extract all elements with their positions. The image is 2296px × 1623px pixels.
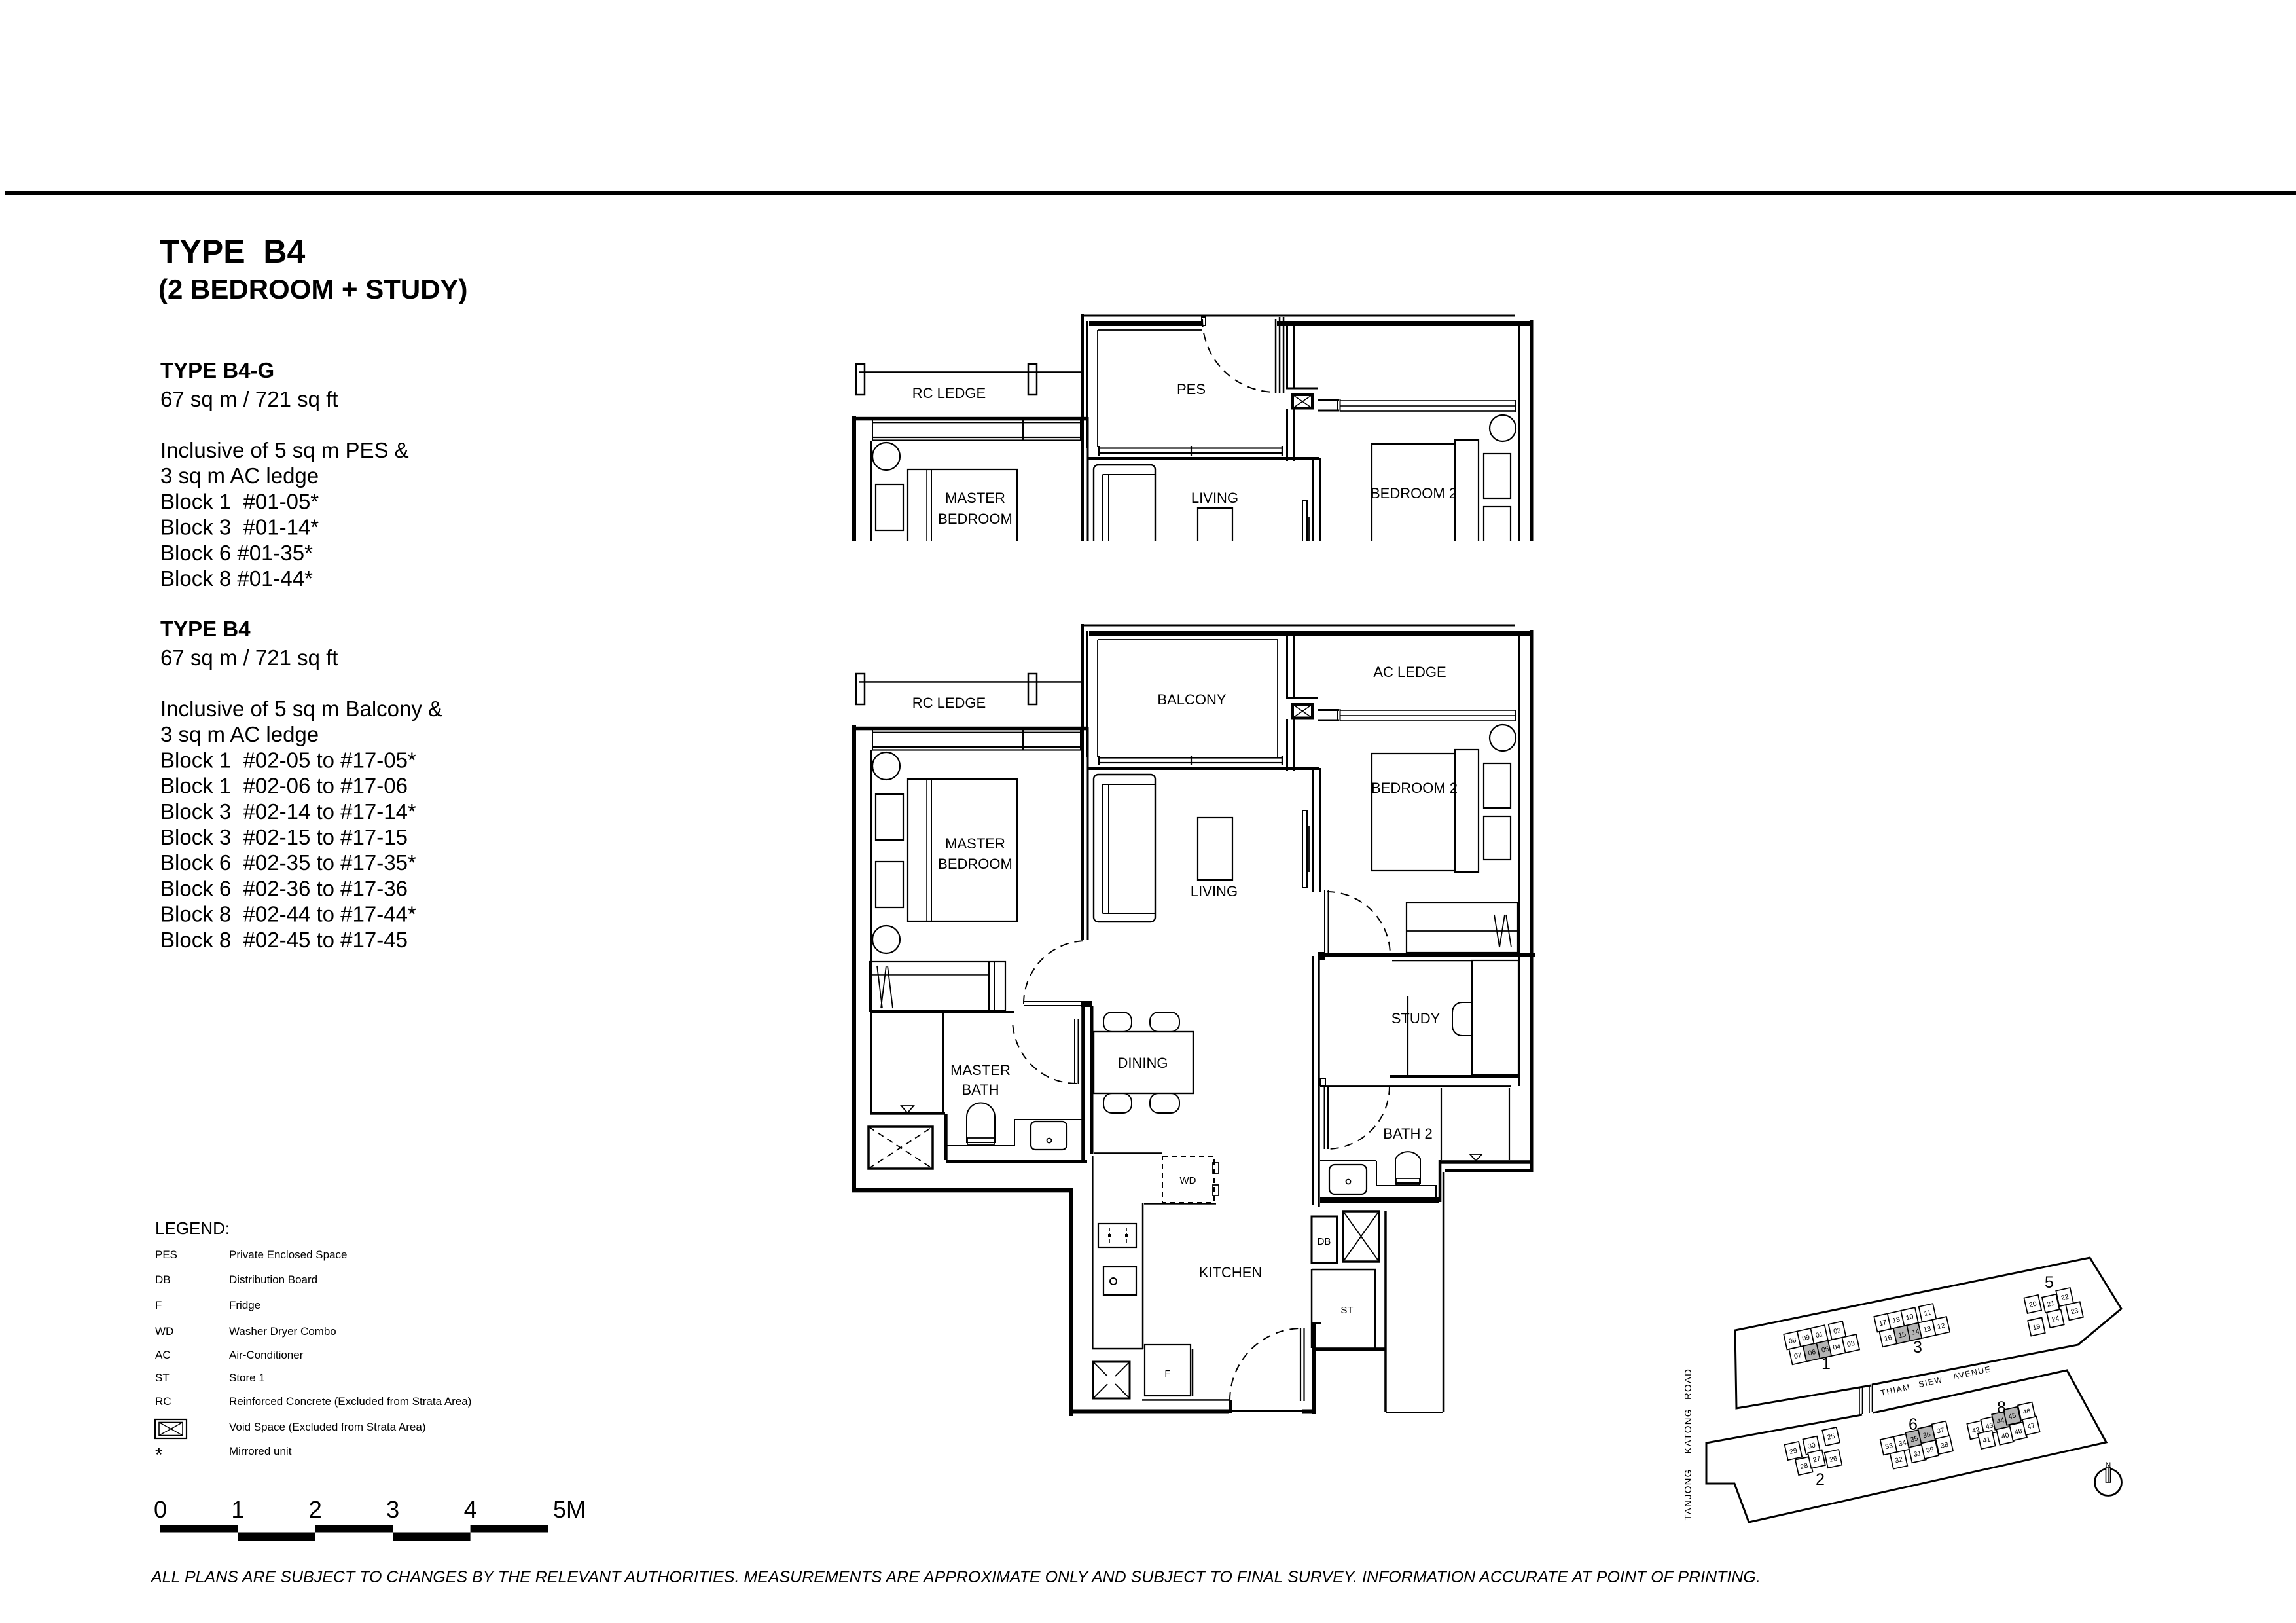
svg-text:3 sq m AC ledge: 3 sq m AC ledge bbox=[160, 464, 319, 488]
svg-text:MASTER: MASTER bbox=[945, 835, 1005, 852]
svg-text:WD: WD bbox=[1180, 1175, 1196, 1186]
svg-text:N: N bbox=[2106, 1461, 2111, 1470]
svg-text:RC LEDGE: RC LEDGE bbox=[912, 385, 986, 401]
svg-text:TANJONG: TANJONG bbox=[1683, 1469, 1694, 1521]
svg-text:KATONG: KATONG bbox=[1683, 1408, 1694, 1453]
svg-text:Void Space (Excluded from Stra: Void Space (Excluded from Strata Area) bbox=[229, 1421, 426, 1433]
svg-text:67 sq m / 721 sq ft: 67 sq m / 721 sq ft bbox=[160, 387, 338, 411]
svg-text:BATH: BATH bbox=[961, 1082, 999, 1098]
svg-text:MASTER: MASTER bbox=[950, 1062, 1011, 1078]
svg-text:F: F bbox=[155, 1299, 162, 1311]
svg-text:8: 8 bbox=[1997, 1398, 2006, 1417]
svg-text:ROAD: ROAD bbox=[1683, 1368, 1694, 1400]
svg-text:4: 4 bbox=[464, 1496, 477, 1523]
svg-text:6: 6 bbox=[1909, 1415, 1918, 1434]
svg-text:AC: AC bbox=[155, 1349, 171, 1361]
svg-text:DB: DB bbox=[155, 1273, 171, 1286]
svg-text:ST: ST bbox=[1340, 1305, 1353, 1316]
svg-text:MASTER: MASTER bbox=[945, 490, 1005, 506]
svg-text:BEDROOM 2: BEDROOM 2 bbox=[1371, 485, 1457, 501]
svg-text:BEDROOM 2: BEDROOM 2 bbox=[1371, 780, 1458, 796]
svg-text:Washer Dryer Combo: Washer Dryer Combo bbox=[229, 1325, 336, 1338]
svg-text:Block 6 #01-35*: Block 6 #01-35* bbox=[160, 541, 313, 565]
svg-text:BALCONY: BALCONY bbox=[1157, 691, 1226, 708]
svg-text:2: 2 bbox=[309, 1496, 322, 1523]
svg-text:3: 3 bbox=[386, 1496, 399, 1523]
svg-text:Inclusive of 5 sq m PES &: Inclusive of 5 sq m PES & bbox=[160, 438, 409, 462]
svg-text:Block 6 #02-36 to #17-36: Block 6 #02-36 to #17-36 bbox=[160, 876, 408, 900]
svg-text:LEGEND:: LEGEND: bbox=[155, 1218, 230, 1238]
svg-text:Reinforced Concrete (Excluded: Reinforced Concrete (Excluded from Strat… bbox=[229, 1395, 471, 1408]
svg-text:PES: PES bbox=[1177, 381, 1206, 397]
svg-text:Store 1: Store 1 bbox=[229, 1372, 265, 1384]
svg-text:Inclusive of 5 sq m Balcony &: Inclusive of 5 sq m Balcony & bbox=[160, 697, 442, 721]
svg-text:LIVING: LIVING bbox=[1191, 883, 1238, 900]
svg-text:BEDROOM: BEDROOM bbox=[938, 856, 1013, 872]
svg-text:Block 1 #02-06 to #17-06: Block 1 #02-06 to #17-06 bbox=[160, 774, 408, 798]
svg-text:DINING: DINING bbox=[1118, 1055, 1168, 1071]
svg-text:DB: DB bbox=[1318, 1236, 1331, 1247]
svg-text:1: 1 bbox=[231, 1496, 244, 1523]
svg-text:Block 1 #01-05*: Block 1 #01-05* bbox=[160, 489, 319, 513]
svg-text:Block 8 #01-44*: Block 8 #01-44* bbox=[160, 566, 313, 591]
svg-text:5: 5 bbox=[2045, 1273, 2054, 1292]
svg-text:67 sq m / 721 sq ft: 67 sq m / 721 sq ft bbox=[160, 646, 338, 670]
svg-text:TYPE B4: TYPE B4 bbox=[160, 233, 305, 270]
svg-text:Air-Conditioner: Air-Conditioner bbox=[229, 1349, 304, 1361]
svg-text:ST: ST bbox=[155, 1372, 170, 1384]
svg-text:5M: 5M bbox=[553, 1496, 586, 1523]
svg-text:ALL PLANS ARE SUBJECT TO CHANG: ALL PLANS ARE SUBJECT TO CHANGES BY THE … bbox=[150, 1568, 1761, 1586]
svg-text:*: * bbox=[155, 1444, 163, 1466]
svg-text:PES: PES bbox=[155, 1249, 177, 1261]
svg-text:2: 2 bbox=[1816, 1470, 1825, 1489]
svg-text:LIVING: LIVING bbox=[1191, 490, 1238, 506]
svg-text:BEDROOM: BEDROOM bbox=[938, 511, 1013, 527]
svg-text:AC LEDGE: AC LEDGE bbox=[1373, 664, 1446, 680]
svg-text:3: 3 bbox=[1913, 1338, 1922, 1357]
svg-text:Block 3 #01-14*: Block 3 #01-14* bbox=[160, 515, 319, 539]
svg-text:RC LEDGE: RC LEDGE bbox=[912, 695, 986, 711]
svg-text:Mirrored unit: Mirrored unit bbox=[229, 1445, 292, 1457]
svg-text:(2 BEDROOM + STUDY): (2 BEDROOM + STUDY) bbox=[158, 274, 468, 304]
svg-text:Block 3 #02-14 to #17-14*: Block 3 #02-14 to #17-14* bbox=[160, 799, 416, 824]
svg-text:0: 0 bbox=[154, 1496, 167, 1523]
svg-text:RC: RC bbox=[155, 1395, 171, 1408]
svg-text:Block 8 #02-44 to #17-44*: Block 8 #02-44 to #17-44* bbox=[160, 902, 416, 926]
svg-text:Distribution Board: Distribution Board bbox=[229, 1273, 317, 1286]
svg-text:TYPE B4: TYPE B4 bbox=[160, 617, 251, 641]
svg-text:1: 1 bbox=[1821, 1355, 1831, 1373]
svg-text:Private Enclosed Space: Private Enclosed Space bbox=[229, 1249, 348, 1261]
svg-text:BATH 2: BATH 2 bbox=[1383, 1125, 1432, 1142]
svg-text:3 sq m AC ledge: 3 sq m AC ledge bbox=[160, 722, 319, 746]
svg-text:KITCHEN: KITCHEN bbox=[1199, 1264, 1263, 1281]
svg-text:Block 8 #02-45 to #17-45: Block 8 #02-45 to #17-45 bbox=[160, 928, 408, 952]
svg-text:WD: WD bbox=[155, 1325, 173, 1338]
svg-text:Fridge: Fridge bbox=[229, 1299, 260, 1311]
svg-text:Block 6 #02-35 to #17-35*: Block 6 #02-35 to #17-35* bbox=[160, 850, 416, 875]
svg-text:Block 1 #02-05 to #17-05*: Block 1 #02-05 to #17-05* bbox=[160, 748, 416, 772]
svg-text:F: F bbox=[1164, 1368, 1170, 1379]
svg-text:STUDY: STUDY bbox=[1391, 1010, 1441, 1027]
svg-text:TYPE B4-G: TYPE B4-G bbox=[160, 358, 274, 382]
svg-text:Block 3 #02-15 to #17-15: Block 3 #02-15 to #17-15 bbox=[160, 825, 408, 849]
